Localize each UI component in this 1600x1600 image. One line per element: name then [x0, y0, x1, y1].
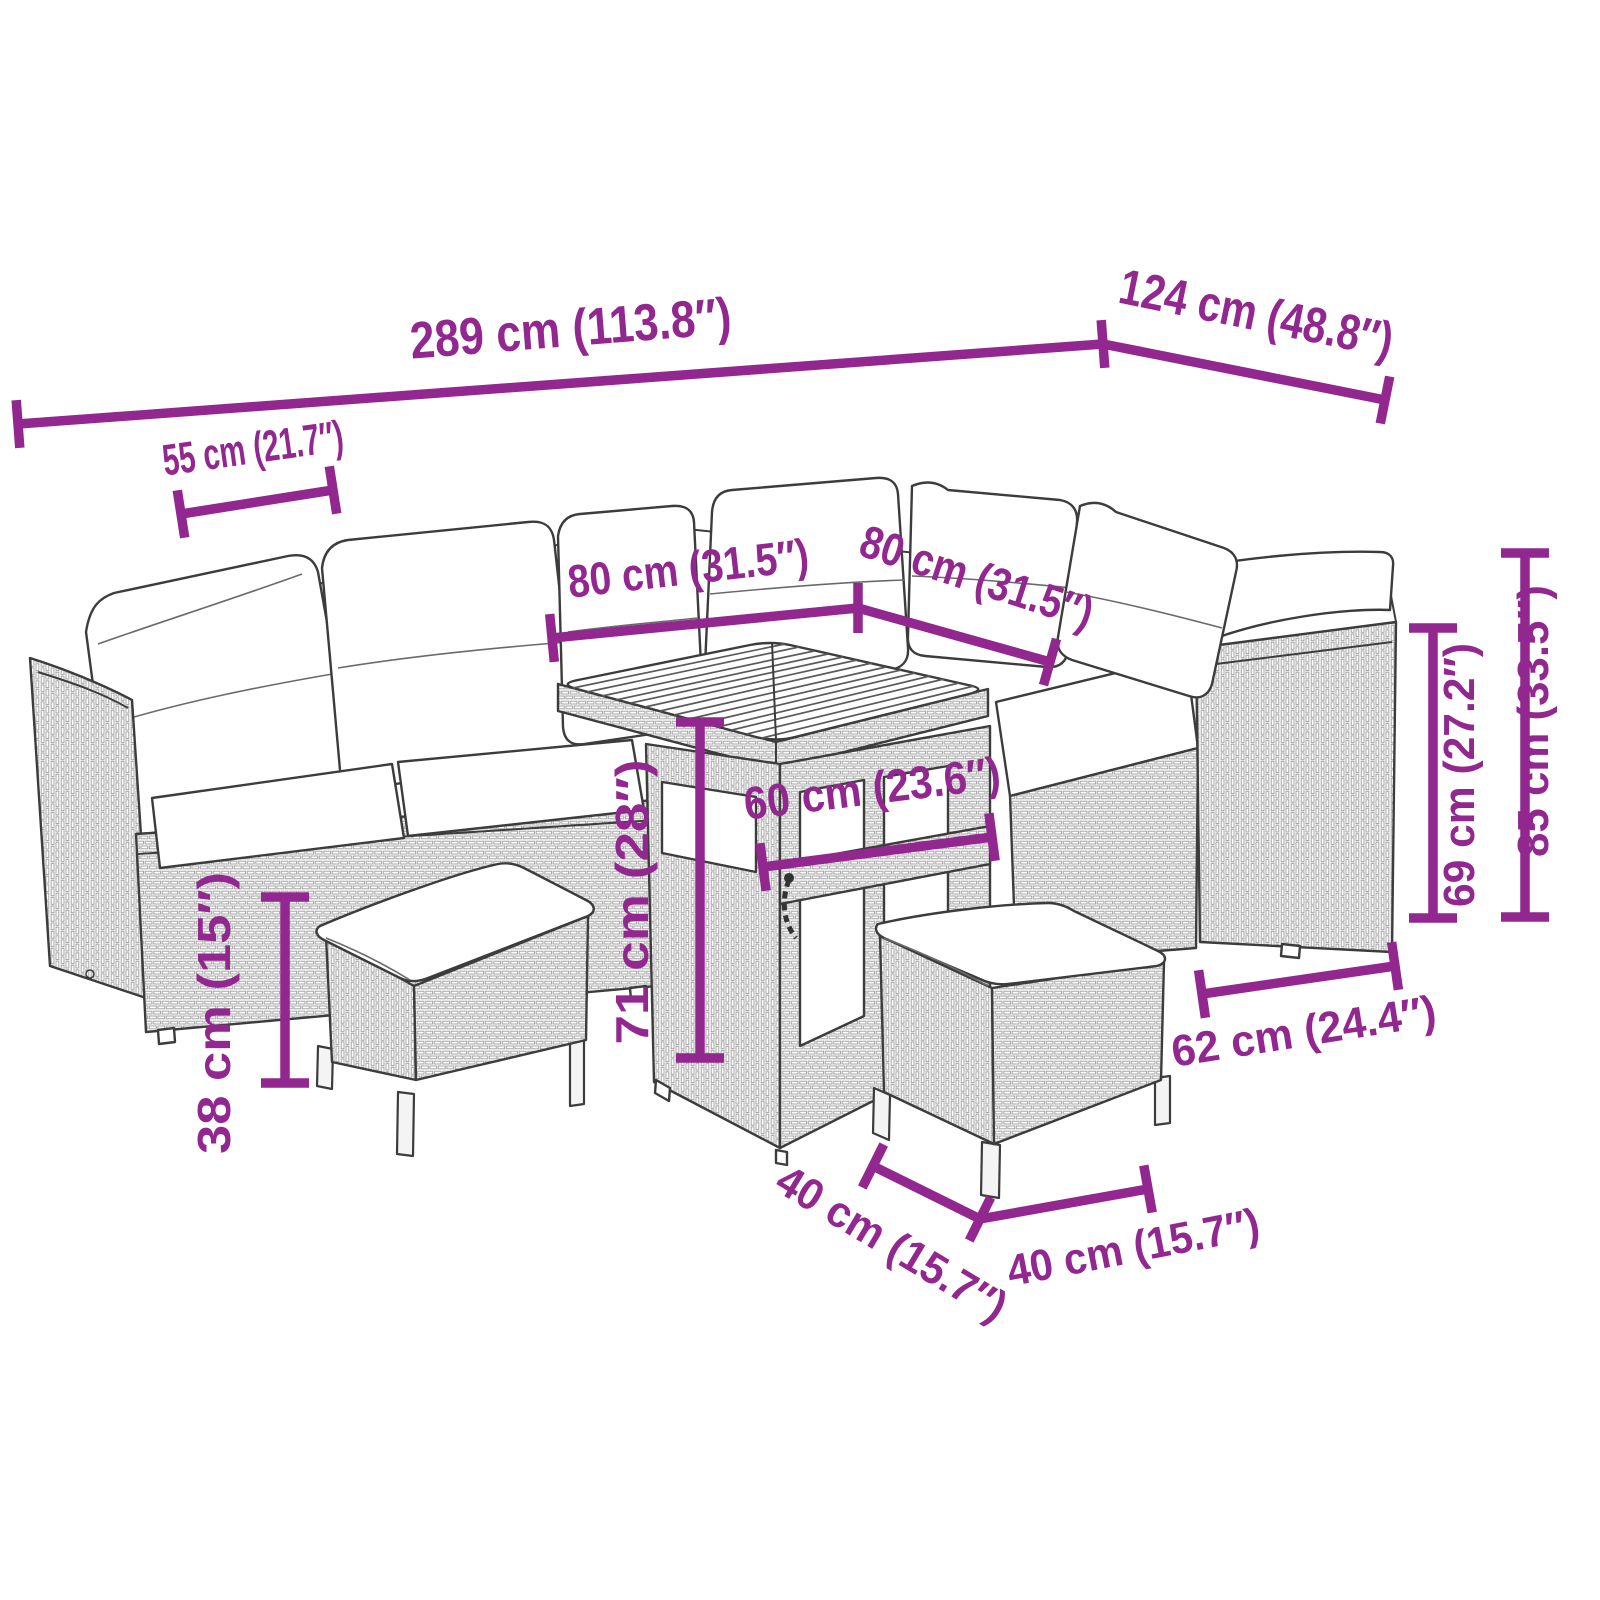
dim-label-total-height: 85 cm (33.5″) [1509, 585, 1558, 857]
dim-total-height: 85 cm (33.5″) [1501, 553, 1558, 917]
dim-side-height: 69 cm (27.2″) [1409, 628, 1484, 918]
dim-overall-depth: 124 cm (48.8″) [1103, 258, 1398, 423]
dim-seat-width: 55 cm (21.7″) [159, 412, 346, 538]
dim-stool-depth: 40 cm (15.7″) [980, 1165, 1264, 1296]
dim-label-stool-depth: 40 cm (15.7″) [1003, 1199, 1264, 1296]
dim-stool-width: 40 cm (15.7″) [767, 1145, 1015, 1332]
stool-leg [1155, 1076, 1170, 1125]
product-dimension-diagram: 289 cm (113.8″) 124 cm (48.8″) 55 cm (21… [0, 0, 1600, 1600]
dim-label-stool-width: 40 cm (15.7″) [767, 1156, 1015, 1332]
dim-label-stool-height: 38 cm (15″) [188, 872, 240, 1154]
stool-leg [397, 1092, 414, 1156]
sofa-right-side-panel [1196, 622, 1396, 952]
stool-leg [570, 1036, 584, 1106]
dim-label-seat-depth: 62 cm (24.4″) [1168, 987, 1439, 1077]
stool-leg [873, 1088, 890, 1140]
dim-label-overall-width: 289 cm (113.8″) [408, 288, 734, 371]
stool-leg [981, 1142, 1000, 1198]
dim-overall-width: 289 cm (113.8″) [16, 288, 1105, 448]
table-foot [776, 1150, 787, 1165]
sofa-foot [1281, 944, 1300, 958]
dim-label-table-height: 71 cm (28″) [606, 760, 658, 1045]
dim-seat-depth: 62 cm (24.4″) [1168, 942, 1439, 1077]
dim-label-seat-width: 55 cm (21.7″) [159, 412, 346, 486]
diagram-canvas: 289 cm (113.8″) 124 cm (48.8″) 55 cm (21… [0, 0, 1600, 1600]
stool-body-right [992, 962, 1164, 1144]
sofa-foot [158, 1028, 175, 1044]
dim-label-side-height: 69 cm (27.2″) [1435, 643, 1484, 907]
stool-right [873, 903, 1170, 1198]
sofa-left-armrest [30, 658, 152, 1000]
